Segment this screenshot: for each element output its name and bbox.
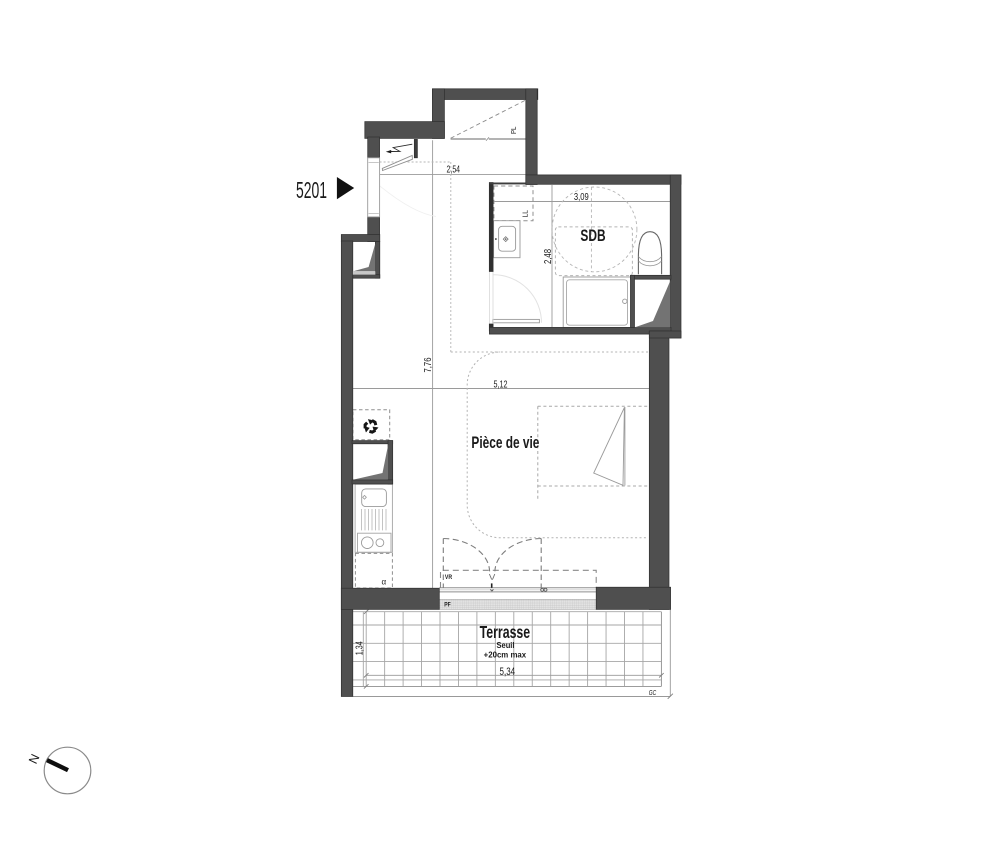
- svg-text:2,54: 2,54: [447, 165, 461, 176]
- svg-text:Terrasse: Terrasse: [480, 622, 531, 642]
- svg-text:3,09: 3,09: [574, 192, 589, 203]
- svg-text:VR: VR: [445, 574, 453, 581]
- svg-text:1,34: 1,34: [355, 641, 366, 655]
- svg-text:2,48: 2,48: [543, 249, 554, 264]
- svg-text:5,12: 5,12: [494, 379, 508, 390]
- svg-text:7,76: 7,76: [423, 357, 434, 372]
- svg-text:SDB: SDB: [580, 227, 605, 245]
- svg-text:5,34: 5,34: [500, 666, 516, 678]
- svg-text:+20cm max: +20cm max: [484, 651, 527, 660]
- svg-text:5201: 5201: [296, 177, 327, 203]
- svg-text:Pièce de vie: Pièce de vie: [471, 434, 539, 452]
- svg-text:PL: PL: [509, 127, 518, 135]
- svg-text:LL: LL: [521, 210, 530, 218]
- svg-text:Seuil: Seuil: [497, 641, 515, 650]
- svg-text:α: α: [382, 578, 387, 587]
- svg-text:GC: GC: [649, 690, 657, 697]
- svg-text:PF: PF: [444, 601, 451, 608]
